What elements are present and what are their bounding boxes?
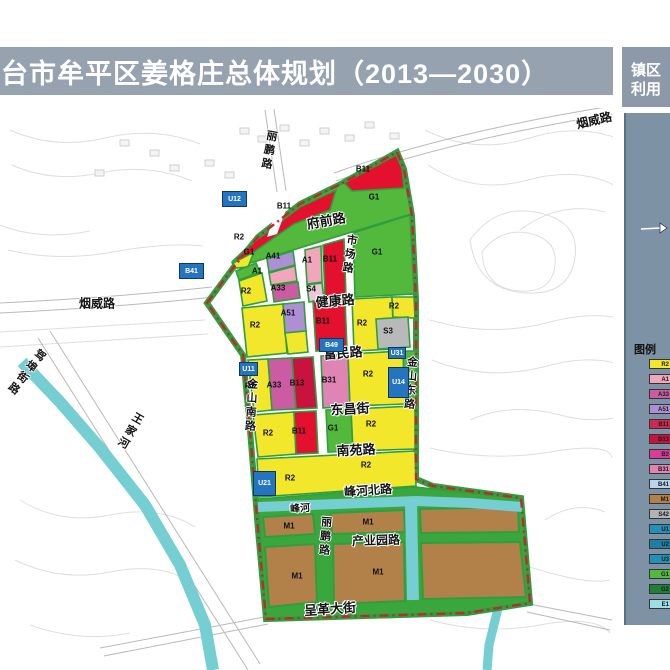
zone-marker-U14: U14	[388, 367, 409, 398]
zone-label: B11	[323, 255, 337, 264]
legend-item: S42	[626, 507, 670, 522]
road-label: 烟威路	[575, 108, 614, 133]
road-label: 南苑路	[336, 438, 376, 459]
zone-marker-U12: U12	[222, 191, 247, 207]
zone-label: R2	[366, 420, 376, 429]
zone-label: B31	[322, 376, 337, 385]
zone-marker-U11: U11	[239, 362, 258, 376]
zone-label: A1	[302, 256, 312, 265]
zone-label: M1	[291, 572, 302, 581]
legend-panel: 图例 R2A1A33A51B11B13B2B31B41M1S42U1U2U3G1…	[624, 113, 670, 625]
road-label: 产业园路	[352, 531, 401, 550]
road-label-vertical: 市场路	[338, 233, 360, 277]
zone-marker-B49: B49	[319, 338, 344, 352]
road-label-vertical: 王家河	[112, 409, 147, 453]
road-label: 呈革大街	[303, 597, 356, 620]
legend-item: E1	[626, 597, 670, 612]
legend-item: U3	[626, 552, 670, 567]
zone-label: R2	[245, 382, 255, 391]
zone-label: B11	[356, 165, 370, 174]
legend-swatch: M1	[649, 494, 670, 504]
legend-swatch: B41	[649, 479, 670, 489]
legend-swatch: B2	[649, 449, 670, 459]
zone-label: G1	[372, 248, 383, 257]
zone-label: R2	[363, 370, 373, 379]
legend-item: U2	[626, 537, 670, 552]
road-label-vertical: 驾埠街路	[2, 345, 49, 399]
legend-item: R2	[626, 357, 670, 372]
legend-item: G1	[626, 567, 670, 582]
legend-items: R2A1A33A51B11B13B2B31B41M1S42U1U2U3G1G2E…	[626, 357, 670, 612]
north-arrow-icon	[640, 221, 668, 235]
zone-label: A51	[281, 309, 296, 318]
zone-label: M1	[283, 522, 294, 531]
zone-label: S4	[306, 285, 316, 294]
zone-label: B13	[290, 379, 305, 388]
legend-swatch: U3	[649, 554, 670, 564]
legend-swatch: U1	[649, 524, 670, 534]
zone-label: M1	[362, 518, 373, 527]
zone-label: A33	[271, 284, 286, 293]
road-label: 东昌街	[330, 397, 370, 418]
legend-title: 图例	[634, 341, 656, 357]
zone-label: A33	[267, 381, 282, 390]
zone-label: R2	[250, 321, 260, 330]
road-label: 峰河北路	[343, 480, 392, 500]
legend-swatch: R2	[649, 359, 670, 369]
zone-label: R2	[285, 474, 295, 483]
zone-label: A1	[252, 267, 262, 276]
zone-label: B11	[316, 317, 330, 326]
zone-marker-U31: U31	[388, 347, 406, 359]
road-label: 健康路	[315, 289, 356, 311]
legend-item: B11	[626, 417, 670, 432]
legend-swatch: E1	[649, 599, 670, 609]
legend-swatch: G2	[649, 584, 670, 594]
side-tab-line2: 利用	[631, 80, 670, 99]
road-label: 烟威路	[79, 295, 115, 312]
legend-swatch: A51	[649, 404, 670, 414]
zone-label: R2	[234, 233, 244, 242]
legend-item: A33	[626, 387, 670, 402]
legend-item: G2	[626, 582, 670, 597]
zone-label: G1	[328, 424, 339, 433]
zone-marker-B41: B41	[179, 263, 204, 279]
side-tab[interactable]: 镇区 利用	[622, 47, 670, 107]
legend-swatch: B11	[649, 419, 670, 429]
zone-label: R2	[357, 319, 367, 328]
zone-label: B11	[277, 202, 291, 211]
zone-label: R2	[241, 287, 251, 296]
legend-swatch: U2	[649, 539, 670, 549]
legend-item: B31	[626, 462, 670, 477]
zone-marker-U21: U21	[253, 471, 276, 496]
map-label-layer: 烟威路烟威路府前路健康路富民路东昌街南苑路峰河北路产业园路呈革大街峰河丽鹏路市场…	[0, 0, 670, 670]
legend-item: A51	[626, 402, 670, 417]
zone-label: B11	[292, 427, 306, 436]
legend-swatch: A1	[649, 374, 670, 384]
legend-swatch: G1	[649, 569, 670, 579]
side-tab-line1: 镇区	[631, 61, 670, 80]
road-label-vertical: 丽鹏路	[315, 515, 334, 558]
road-label: 府前路	[305, 207, 347, 232]
zone-label: G1	[244, 248, 255, 257]
zone-label: G1	[369, 193, 380, 202]
legend-item: A1	[626, 372, 670, 387]
zone-label: A41	[266, 252, 281, 261]
legend-swatch: B13	[649, 434, 670, 444]
zone-label: R2	[389, 302, 399, 311]
page-title: 台市牟平区姜格庄总体规划（2013—2030）	[1, 52, 549, 91]
legend-item: U1	[626, 522, 670, 537]
legend-item: B41	[626, 477, 670, 492]
road-label: 峰河	[290, 499, 311, 515]
zone-label: S3	[383, 327, 393, 336]
legend-swatch: A33	[649, 389, 670, 399]
zone-label: R2	[263, 429, 273, 438]
title-bar: 台市牟平区姜格庄总体规划（2013—2030）	[0, 47, 613, 95]
legend-item: B2	[626, 447, 670, 462]
road-label-vertical: 丽鹏路	[257, 129, 280, 173]
zone-label: M1	[372, 568, 383, 577]
legend-item: M1	[626, 492, 670, 507]
legend-item: B13	[626, 432, 670, 447]
legend-swatch: B31	[649, 464, 670, 474]
zone-label: R2	[361, 461, 371, 470]
legend-swatch: S42	[649, 509, 670, 519]
